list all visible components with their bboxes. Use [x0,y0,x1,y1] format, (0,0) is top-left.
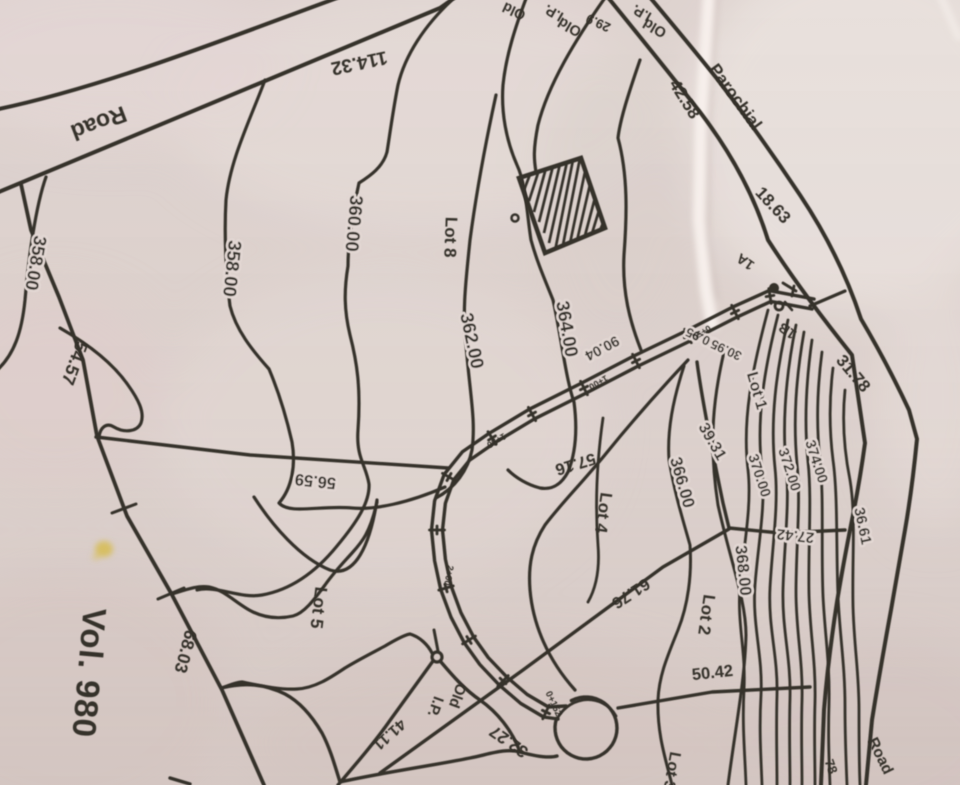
svg-text:Lot 8: Lot 8 [440,217,460,258]
